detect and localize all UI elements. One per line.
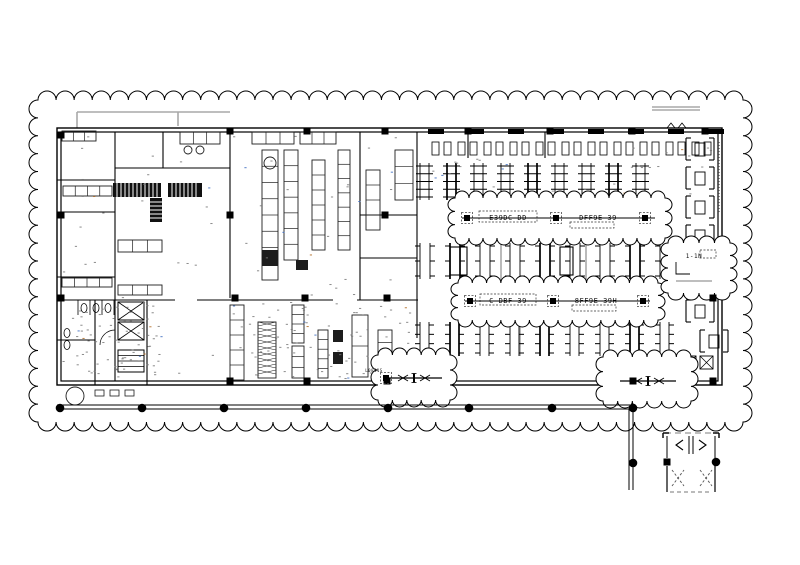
floor-plan-drawing: E39DC-DDDFF9E-39C-DBF-398FF9E-39H1-1NL08… xyxy=(0,0,800,565)
building-walls xyxy=(57,123,724,385)
entrance-vestibule xyxy=(663,433,719,492)
cores-and-toilets xyxy=(64,300,144,372)
colonnade xyxy=(56,404,721,490)
floor-plan-canvas: E39DC-DDDFF9E-39C-DBF-398FF9E-39H1-1NL08… xyxy=(0,0,800,565)
